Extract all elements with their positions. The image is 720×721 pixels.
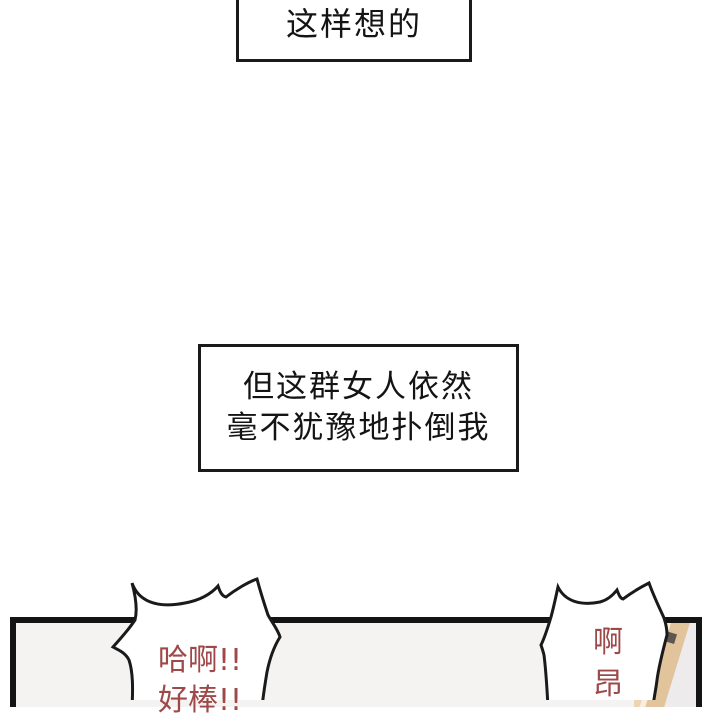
bubble-right-line-1: 啊	[592, 622, 624, 664]
caption-box-middle: 但这群女人依然 毫不犹豫地扑倒我	[198, 344, 519, 472]
caption-middle-line-1: 但这群女人依然	[243, 367, 474, 408]
caption-middle-line-2: 毫不犹豫地扑倒我	[227, 408, 491, 449]
bubble-left-line-2: 好棒!!	[150, 681, 250, 721]
comic-page: { "comic": { "caption_top": { "text": "这…	[0, 0, 720, 700]
caption-box-top: 这样想的	[236, 0, 472, 62]
bubble-left-text: 哈啊!! 好棒!!	[150, 641, 250, 721]
bubble-left-line-1: 哈啊!!	[150, 641, 250, 681]
bubble-right-text: 啊 昂	[592, 622, 624, 706]
caption-top-text: 这样想的	[239, 0, 469, 45]
